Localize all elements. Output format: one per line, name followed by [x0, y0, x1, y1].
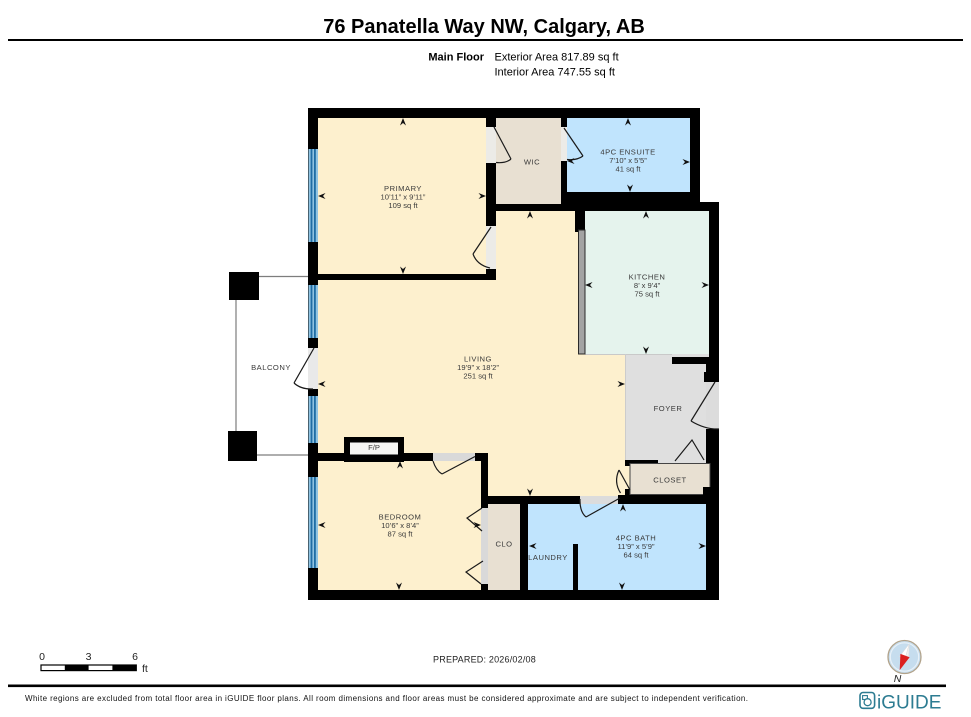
svg-text:BALCONY: BALCONY [251, 363, 291, 372]
svg-text:ft: ft [142, 663, 148, 675]
svg-text:87 sq ft: 87 sq ft [388, 530, 414, 539]
svg-text:75 sq ft: 75 sq ft [635, 290, 661, 299]
svg-text:6: 6 [132, 651, 138, 663]
svg-text:CLOSET: CLOSET [653, 476, 686, 485]
svg-text:WIC: WIC [524, 158, 540, 167]
svg-text:109 sq ft: 109 sq ft [388, 201, 418, 210]
svg-text:White regions are excluded fro: White regions are excluded from total fl… [25, 694, 748, 703]
svg-text:Exterior Area 817.89 sq ft: Exterior Area 817.89 sq ft [495, 52, 619, 64]
svg-text:LAUNDRY: LAUNDRY [528, 553, 568, 562]
svg-text:iGUIDE: iGUIDE [877, 693, 941, 714]
svg-text:3: 3 [86, 651, 92, 663]
svg-text:PREPARED: 2026/02/08: PREPARED: 2026/02/08 [433, 655, 536, 665]
svg-text:64 sq ft: 64 sq ft [624, 551, 650, 560]
svg-text:Interior Area 747.55 sq ft: Interior Area 747.55 sq ft [495, 67, 615, 79]
svg-text:0: 0 [39, 651, 45, 663]
svg-text:41 sq ft: 41 sq ft [616, 165, 642, 174]
svg-text:N: N [894, 673, 902, 685]
svg-text:76 Panatella Way NW, Calgary,: 76 Panatella Way NW, Calgary, AB [323, 16, 645, 38]
svg-text:FOYER: FOYER [654, 404, 683, 413]
svg-text:Main Floor: Main Floor [428, 52, 484, 64]
svg-text:CLO: CLO [495, 540, 512, 549]
svg-text:251 sq ft: 251 sq ft [463, 372, 493, 381]
svg-text:F/P: F/P [368, 443, 380, 452]
